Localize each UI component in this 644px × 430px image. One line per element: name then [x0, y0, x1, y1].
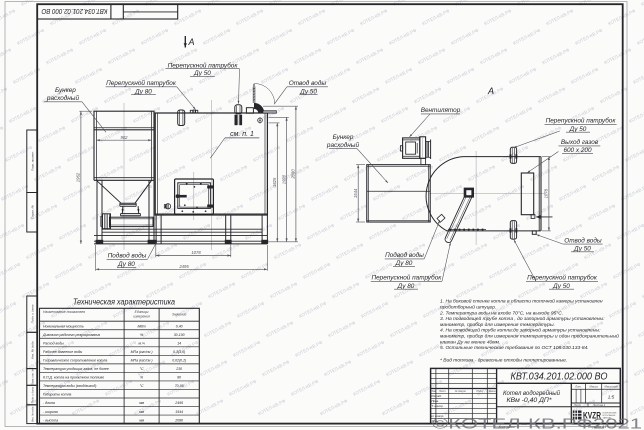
svg-text:Гидравлическое сопротивление к: Гидравлическое сопротивление котла	[43, 359, 107, 363]
svg-text:Перепускной патрубок: Перепускной патрубок	[106, 79, 177, 87]
svg-text:Подп. и дата: Подп. и дата	[31, 304, 35, 323]
svg-text:Инв. № дубл.: Инв. № дубл.	[31, 341, 35, 360]
svg-text:Значение: Значение	[172, 313, 187, 317]
svg-text:мм: мм	[139, 410, 144, 414]
svg-text:Пров.: Пров.	[432, 399, 440, 403]
svg-text:0,40: 0,40	[176, 324, 183, 328]
svg-text:- ширина: - ширина	[43, 410, 58, 414]
svg-text:30-100: 30-100	[174, 333, 185, 337]
svg-text:проботборный штуцер.: проботборный штуцер.	[440, 304, 496, 311]
svg-text:1:5: 1:5	[608, 394, 615, 399]
svg-text:Перепускной патрубок: Перепускной патрубок	[372, 274, 443, 282]
svg-text:70-95: 70-95	[175, 384, 184, 388]
svg-text:1962: 1962	[76, 172, 81, 182]
svg-text:Ду 80: Ду 80	[395, 260, 413, 267]
svg-text:Отвод воды: Отвод воды	[564, 236, 602, 244]
svg-text:%: %	[140, 333, 143, 337]
svg-text:Техническая характеристика: Техническая характеристика	[73, 298, 176, 307]
svg-text:Ду 80: Ду 80	[134, 88, 152, 95]
svg-text:1078: 1078	[191, 250, 201, 255]
svg-text:2080: 2080	[174, 418, 183, 422]
svg-text:14: 14	[177, 342, 181, 346]
svg-text:Масштаб: Масштаб	[604, 385, 617, 389]
svg-text:Расход воды: Расход воды	[43, 342, 64, 346]
svg-text:- высота: - высота	[43, 418, 58, 422]
svg-text:КВм -0,40 ДП*: КВм -0,40 ДП*	[507, 397, 552, 404]
svg-text:* Вид топлива - древесные отх: * Вид топлива - древесные отходы пеллети…	[440, 358, 567, 364]
svg-text:Дата: Дата	[488, 389, 496, 393]
svg-text:2495: 2495	[178, 264, 189, 269]
svg-text:Номинальная мощность: Номинальная мощность	[43, 324, 84, 328]
svg-text:2495: 2495	[174, 401, 183, 405]
svg-text:Масса: Масса	[589, 385, 598, 389]
svg-text:Ду 80: Ду 80	[397, 283, 415, 290]
svg-text:КВТ.034.201.02.000 ВО: КВТ.034.201.02.000 ВО	[511, 372, 608, 383]
svg-text:4. На отводящей трубе котла:д: 4. На отводящей трубе котла:до запорной …	[440, 327, 601, 334]
svg-text:1078: 1078	[544, 188, 549, 198]
svg-text:мм: мм	[139, 418, 144, 422]
svg-text:°С: °С	[140, 367, 144, 371]
svg-text:А: А	[187, 37, 194, 47]
svg-text:МПа (кгс/см ): МПа (кгс/см )	[131, 359, 153, 363]
svg-text:К.П.Д. котла на проектном топл: К.П.Д. котла на проектном топливе	[43, 376, 104, 380]
svg-text:600 x 200: 600 x 200	[563, 147, 592, 154]
svg-text:манометр, прибор для измерения: манометр, прибор для измерения температу…	[440, 322, 555, 328]
svg-text:Перепускной патрубок: Перепускной патрубок	[546, 117, 617, 125]
svg-text:5. Остальные технические треб: 5. Остальные технические требования по О…	[440, 345, 589, 351]
svg-text:мм: мм	[139, 401, 144, 405]
svg-text:Разраб.: Разраб.	[432, 394, 442, 398]
svg-text:№ докум.: № докум.	[455, 389, 467, 393]
svg-text:манометр, прибор для измерения: манометр, прибор для измерения температу…	[440, 332, 619, 339]
svg-text:80: 80	[177, 376, 181, 380]
svg-text:230: 230	[175, 367, 182, 371]
svg-text:©КОТЕЛ-КВ.РФ2021: ©КОТЕЛ-КВ.РФ2021	[432, 416, 642, 430]
svg-text:Наименование показателя: Наименование показателя	[43, 310, 85, 314]
svg-text:Бункер: Бункер	[55, 87, 76, 94]
svg-text:0,3(3,0): 0,3(3,0)	[173, 350, 185, 354]
svg-text:Подп.: Подп.	[476, 389, 483, 393]
svg-text:1825: 1825	[272, 177, 277, 187]
svg-text:А: А	[487, 86, 494, 96]
svg-text:Подп. и дата: Подп. и дата	[31, 386, 35, 403]
svg-text:- длина: - длина	[43, 401, 55, 405]
svg-text:Взам. инв. №: Взам. инв. №	[31, 369, 35, 385]
svg-text:клапан Ду не менее 40мм.: клапан Ду не менее 40мм.	[440, 339, 500, 345]
svg-text:Перепускной патрубок: Перепускной патрубок	[168, 61, 239, 69]
svg-text:м /ч: м /ч	[139, 342, 145, 346]
svg-text:Ду 80: Ду 80	[117, 261, 135, 268]
svg-text:Справ. №: Справ. №	[31, 204, 35, 218]
svg-text:2080: 2080	[291, 169, 296, 180]
svg-text:Ду 50: Ду 50	[193, 70, 211, 77]
svg-text:Изм: Изм	[431, 389, 436, 393]
svg-text:3. На подводящей трубе котла: 3. На подводящей трубе котла , до запорн…	[440, 315, 605, 322]
svg-text:измерения: измерения	[133, 315, 150, 319]
svg-text:%: %	[140, 376, 143, 380]
svg-text:Ду 50: Ду 50	[573, 245, 591, 252]
svg-text:1544: 1544	[175, 410, 183, 414]
svg-text:2. Температура воды на входе: 2. Температура воды на входе 70°С, на вы…	[439, 310, 563, 316]
svg-text:Перв. примен.: Перв. примен.	[31, 151, 35, 171]
svg-text:Лит.: Лит.	[574, 385, 582, 389]
svg-text:МВт: МВт	[138, 324, 146, 328]
svg-text:Ду 50: Ду 50	[299, 88, 317, 95]
svg-text:Температура воды (вход/выход): Температура воды (вход/выход)	[43, 384, 96, 388]
svg-text:расходный: расходный	[326, 141, 360, 149]
svg-text:Габариты котла: Габариты котла	[43, 393, 71, 397]
svg-text:Ду 50: Ду 50	[552, 283, 570, 290]
svg-text:Единицы: Единицы	[135, 310, 149, 314]
svg-text:Ду 50: Ду 50	[569, 126, 587, 133]
svg-text:Т. контр.: Т. контр.	[432, 404, 444, 408]
svg-text:КВТ.034.201.02.000 ВО: КВТ.034.201.02.000 ВО	[41, 7, 107, 16]
svg-text:Подвод воды: Подвод воды	[108, 252, 147, 260]
svg-text:1544: 1544	[353, 188, 358, 198]
svg-text:Бункер: Бункер	[333, 134, 354, 141]
svg-text:Инв. № подл.: Инв. № подл.	[31, 406, 35, 422]
svg-text:Отвод воды: Отвод воды	[289, 79, 327, 87]
svg-text:Диапазон рабочего регулировани: Диапазон рабочего регулирования	[42, 333, 100, 337]
svg-text:0,02(0,2): 0,02(0,2)	[172, 359, 186, 363]
svg-text:Подвод воды: Подвод воды	[385, 251, 424, 259]
svg-text:Перепускной патрубок: Перепускной патрубок	[527, 274, 598, 282]
svg-text:Лист: Лист	[438, 389, 447, 393]
svg-text:расходный: расходный	[46, 94, 80, 102]
svg-text:1920: 1920	[281, 174, 286, 184]
svg-text:1. На боковой стенке котла в: 1. На боковой стенке котла в области топ…	[440, 298, 603, 305]
svg-text:см. п. 1: см. п. 1	[230, 131, 254, 138]
svg-text:Выход газов: Выход газов	[561, 138, 599, 146]
svg-text:Рабочее давление воды: Рабочее давление воды	[43, 350, 83, 354]
svg-text:°С: °С	[140, 384, 144, 388]
svg-text:Температура уходящих газов, не: Температура уходящих газов, не более	[43, 367, 109, 371]
svg-text:902: 902	[121, 135, 129, 140]
svg-text:Вентилятор: Вентилятор	[421, 107, 461, 114]
svg-text:МПа (кгс/см ): МПа (кгс/см )	[131, 350, 153, 354]
svg-text:Котел водогрейный: Котел водогрейный	[503, 389, 560, 397]
